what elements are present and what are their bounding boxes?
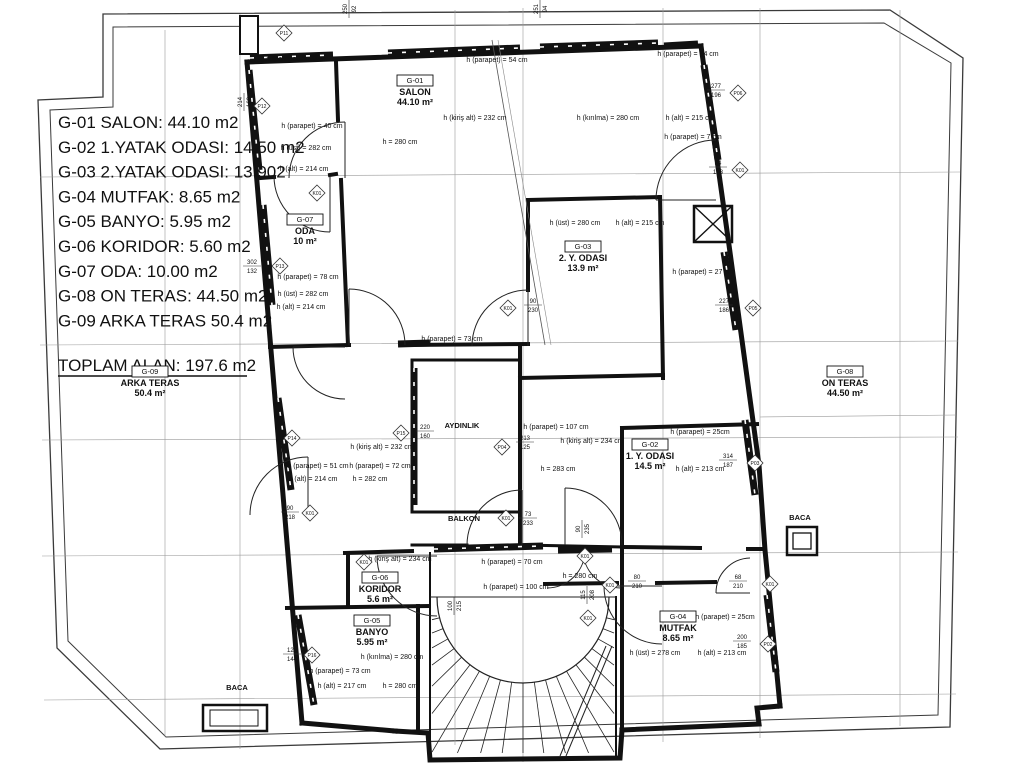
- stair-tread: [432, 639, 448, 648]
- dim-top: 200: [737, 635, 748, 641]
- dim-top: 227: [719, 299, 730, 305]
- room-name: ODA: [295, 226, 316, 236]
- dim-bottom: 160: [420, 434, 431, 440]
- dim-top: 213: [520, 436, 531, 442]
- height-annotation: h (parapet) = 40 cm: [281, 123, 342, 130]
- stair-tread: [502, 682, 511, 753]
- dim-bottom: 210: [632, 584, 643, 590]
- dim-bottom: 218: [285, 515, 296, 521]
- height-annotation: h (üst) = 282 cm: [281, 145, 332, 152]
- height-annotation: h (parapet) = 25cm: [670, 429, 730, 436]
- stair-tread: [606, 618, 614, 620]
- room-label: G-032. Y. ODASI13.9 m²: [559, 241, 607, 273]
- height-annotation: h (alt) = 215 cm: [666, 115, 715, 122]
- legend-item: G-06 KORIDOR: 5.60 m2: [58, 237, 251, 256]
- height-annotation: h (parapet) = 72 cm: [349, 463, 410, 470]
- chimney-rect-inner: [793, 533, 811, 549]
- dim-bottom: 230: [528, 308, 539, 314]
- height-annotation: h (üst) = 278 cm: [630, 650, 681, 657]
- dim-top: 115: [581, 590, 587, 600]
- dim-fraction: 68210: [729, 575, 747, 590]
- stair-tread: [432, 629, 443, 633]
- room-code: G-08: [837, 367, 854, 376]
- room-code: G-07: [297, 215, 314, 224]
- room-area: 44.50 m²: [827, 388, 863, 398]
- dim-bottom: 132: [247, 269, 258, 275]
- dim-bottom: 185: [737, 644, 748, 650]
- wall-bottom-left: [302, 723, 395, 731]
- window: [664, 44, 698, 46]
- marker-label: P06: [734, 91, 743, 97]
- stair-tread: [534, 682, 543, 753]
- room-name: MUTFAK: [659, 623, 697, 633]
- dim-top: 250: [343, 3, 349, 14]
- dim-bottom: 178: [713, 170, 724, 176]
- height-annotation: h (üst) = 282 cm: [278, 291, 329, 298]
- legend-item: G-04 MUTFAK: 8.65 m2: [58, 187, 240, 206]
- height-annotation: h (parapet) = 100 cm: [483, 584, 548, 591]
- marker-diamond: K01: [309, 185, 325, 201]
- room-code: G-05: [364, 616, 381, 625]
- dim-bottom: 125: [520, 445, 531, 451]
- marker-label: K01: [360, 560, 369, 566]
- stair-tread: [457, 676, 489, 753]
- dim-bottom: 196: [711, 93, 722, 99]
- height-annotation: h (üst) = 280 cm: [550, 220, 601, 227]
- room-code: G-09: [142, 367, 159, 376]
- room-name: BANYO: [356, 627, 389, 637]
- room-label: G-08ON TERAS44.50 m²: [822, 366, 869, 398]
- wall-mutfak-top: [545, 582, 715, 584]
- door-arc: [349, 289, 405, 345]
- stair-tread: [432, 618, 440, 620]
- dim-fraction: 25092: [343, 0, 358, 18]
- dim-bottom: 208: [590, 589, 596, 600]
- legend-item: G-07 ODA: 10.00 m2: [58, 262, 218, 281]
- height-annotation: h (parapet) = 73 cm: [421, 336, 482, 343]
- height-annotation: h (parapet) = 73 cm: [309, 668, 370, 675]
- legend-item: G-05 BANYO: 5.95 m2: [58, 212, 231, 231]
- legend-item: G-01 SALON: 44.10 m2: [58, 113, 238, 132]
- room-name: KORIDOR: [359, 584, 402, 594]
- marker-diamond: P13: [272, 258, 288, 274]
- marker-diamond: K01: [500, 300, 516, 316]
- room-code: G-01: [407, 76, 424, 85]
- dim-bottom: 215: [457, 600, 463, 611]
- height-annotation: h (parapet) = 40 cm: [266, 56, 327, 63]
- wall-g03-top: [528, 197, 660, 200]
- dim-top: 84: [715, 161, 722, 167]
- dim-top: 90: [530, 299, 537, 305]
- room-area: 10 m²: [293, 236, 317, 246]
- marker-label: P04: [498, 445, 507, 451]
- height-annotation: h (parapet) = 70 cm: [481, 559, 542, 566]
- room-label: BACA: [789, 513, 811, 522]
- stair-tread: [592, 649, 614, 666]
- room-label: G-04MUTFAK8.65 m²: [659, 611, 697, 643]
- room-label: AYDINLIK: [445, 421, 480, 430]
- height-annotation: h (alt) = 214 cm: [289, 476, 338, 483]
- height-annotation: h (parapet) = 7 cm: [664, 134, 722, 141]
- marker-label: K01: [606, 583, 615, 589]
- grid-line: [44, 694, 956, 700]
- interior-walls: [261, 62, 765, 760]
- marker-label: K01: [306, 511, 315, 517]
- marker-label: P11: [280, 31, 289, 37]
- legend-item: G-08 ON TERAS: 44.50 m2: [58, 287, 267, 306]
- dim-bottom: 92: [352, 5, 358, 12]
- room-area: 8.65 m²: [662, 633, 693, 643]
- height-annotation: h (alt) = 213 cm: [676, 466, 725, 473]
- dim-top: 73: [525, 512, 532, 518]
- dim-top: 302: [247, 260, 258, 266]
- marker-diamond: P04: [494, 439, 510, 455]
- dim-bottom: 235: [585, 523, 591, 534]
- chimney-rect: [787, 527, 817, 555]
- corner-column: [240, 16, 258, 54]
- marker-label: K01: [313, 191, 322, 197]
- room-area: 44.10 m²: [397, 97, 433, 107]
- legend-item: G-02 1.YATAK ODASI: 14.50 m2: [58, 138, 305, 157]
- room-code: G-04: [670, 612, 687, 621]
- dim-fraction: 200185: [733, 635, 751, 650]
- room-name: ON TERAS: [822, 378, 869, 388]
- marker-diamond: K01: [302, 505, 318, 521]
- chimney-rect: [203, 705, 267, 731]
- window: [398, 343, 430, 344]
- room-label: G-05BANYO5.95 m²: [354, 615, 390, 647]
- chimney-rect-inner: [210, 710, 258, 726]
- dim-bottom: 144: [287, 657, 298, 663]
- room-area: 5.6 m²: [367, 594, 393, 604]
- height-annotation: h (alt) = 217 cm: [318, 683, 367, 690]
- dim-top: 314: [723, 454, 734, 460]
- wall-g02-bottom: [622, 547, 765, 549]
- dim-fraction: 100215: [448, 597, 463, 615]
- door-arc: [656, 140, 716, 200]
- height-annotation: h (kırılma) = 280 cm: [577, 115, 640, 122]
- height-annotation: h (parapet) = 25cm: [695, 614, 755, 621]
- height-annotation: h (parapet) = 54 cm: [466, 57, 527, 64]
- wall-g02-top: [622, 424, 757, 428]
- dim-bottom: 94: [543, 5, 549, 12]
- room-area: 13.9 m²: [567, 263, 598, 273]
- marker-label: P15: [397, 431, 406, 437]
- marker-label: K01: [504, 306, 513, 312]
- dim-top: 80: [634, 575, 641, 581]
- dim-fraction: 25194: [534, 0, 549, 18]
- room-label: G-07ODA10 m²: [287, 214, 323, 246]
- space-label: BACA: [226, 683, 248, 692]
- floor-plan-canvas: G-01 SALON: 44.10 m2G-02 1.YATAK ODASI: …: [0, 0, 1024, 772]
- height-annotation: h (kiriş alt) = 234 cm: [560, 438, 623, 445]
- dim-bottom: 233: [523, 521, 534, 527]
- roof-fold-line: [498, 40, 551, 345]
- window: [767, 595, 776, 672]
- height-annotation: h (parapet) = 27 cm: [672, 269, 733, 276]
- marker-label: P03: [751, 461, 760, 467]
- stair-tread: [603, 629, 614, 633]
- marker-label: K01: [584, 616, 593, 622]
- dim-bottom: 186: [719, 308, 730, 314]
- dim-bottom: 210: [733, 584, 744, 590]
- height-annotation: h = 280 cm: [563, 573, 598, 580]
- room-code: G-06: [372, 573, 389, 582]
- dim-top: 90: [576, 525, 582, 532]
- dim-fraction: 302132: [243, 260, 261, 275]
- height-annotation: h = 282 cm: [353, 476, 388, 483]
- height-annotation: h (parapet) = 107 cm: [523, 424, 588, 431]
- legend-item: G-03 2.YATAK ODASI: 13.902: [58, 163, 286, 182]
- space-label: BACA: [789, 513, 811, 522]
- dim-top: 100: [448, 600, 454, 611]
- roof-fold-line: [492, 40, 545, 345]
- marker-diamond: K01: [732, 162, 748, 178]
- marker-diamond: K01: [762, 576, 778, 592]
- height-annotation: h = 283 cm: [541, 466, 576, 473]
- room-name: 1. Y. ODASI: [626, 451, 674, 461]
- height-annotation: h (parapet) = 78 cm: [277, 274, 338, 281]
- room-area: 5.95 m²: [356, 637, 387, 647]
- wall-bottom-right-step: [622, 706, 780, 730]
- stair-tread: [432, 649, 454, 666]
- grid-line: [42, 552, 958, 556]
- marker-diamond: P05: [745, 300, 761, 316]
- dim-top: 251: [534, 3, 540, 14]
- wall-salon-left: [336, 62, 348, 345]
- height-annotation: h (kiriş alt) = 234 cm: [368, 556, 431, 563]
- room-code: G-03: [575, 242, 592, 251]
- dim-fraction: 115208: [581, 586, 596, 604]
- dim-fraction: 80210: [628, 575, 646, 590]
- height-annotation: h (kiriş alt) = 232 cm: [443, 115, 506, 122]
- wall-g03-bottom: [520, 375, 663, 378]
- height-annotation: h (parapet) = 54 cm: [657, 51, 718, 58]
- grid-line: [42, 437, 958, 440]
- dim-bottom: 168: [247, 96, 253, 107]
- grid-line: [760, 415, 956, 417]
- marker-label: P05: [749, 306, 758, 312]
- height-annotation: h = 280 cm: [383, 683, 418, 690]
- dim-fraction: 220160: [416, 425, 434, 440]
- height-annotation: h (alt) = 214 cm: [277, 304, 326, 311]
- marker-label: P13: [276, 264, 285, 270]
- room-name: SALON: [399, 87, 431, 97]
- marker-label: P12: [258, 104, 267, 110]
- marker-diamond: P11: [276, 25, 292, 41]
- stair-break-line: [566, 646, 612, 756]
- dim-top: 125: [287, 648, 298, 654]
- room-code: G-02: [642, 440, 659, 449]
- marker-label: P16: [308, 653, 317, 659]
- room-label: G-021. Y. ODASI14.5 m²: [626, 439, 674, 471]
- room-label: BALKON: [448, 514, 480, 523]
- dim-top: 90: [287, 506, 294, 512]
- room-area: 50.4 m²: [134, 388, 165, 398]
- height-annotation: h = 280 cm: [383, 139, 418, 146]
- room-label: BACA: [226, 683, 248, 692]
- marker-label: P14: [288, 436, 297, 442]
- height-annotation: h (kırılma) = 280 cm: [361, 654, 424, 661]
- space-label: AYDINLIK: [445, 421, 480, 430]
- room-label: G-01SALON44.10 m²: [397, 75, 433, 107]
- marker-diamond: P06: [730, 85, 746, 101]
- floor-plan-page: G-01 SALON: 44.10 m2G-02 1.YATAK ODASI: …: [0, 0, 1024, 772]
- space-label: BALKON: [448, 514, 480, 523]
- marker-diamond: K01: [580, 610, 596, 626]
- dim-fraction: 90235: [576, 520, 591, 538]
- dim-top: 68: [735, 575, 742, 581]
- door-arc: [604, 586, 662, 644]
- height-annotation: h (parapet) = 51 cm: [287, 463, 348, 470]
- door-arc: [293, 347, 345, 399]
- marker-label: K01: [581, 554, 590, 560]
- dim-top: 277: [711, 84, 722, 90]
- wall-corridor-top: [345, 551, 412, 553]
- marker-label: K01: [766, 582, 775, 588]
- dim-bottom: 187: [723, 463, 734, 469]
- marker-label: K01: [736, 168, 745, 174]
- room-name: ARKA TERAS: [121, 378, 180, 388]
- height-annotation: h (alt) = 215 cm: [616, 220, 665, 227]
- marker-label: P02: [764, 642, 773, 648]
- height-annotation: h (alt) = 214 cm: [280, 166, 329, 173]
- room-area: 14.5 m²: [634, 461, 665, 471]
- dim-top: 220: [420, 425, 431, 431]
- height-annotation: h (alt) = 213 cm: [698, 650, 747, 657]
- legend-item: G-09 ARKA TERAS 50.4 m2: [58, 311, 272, 330]
- room-name: 2. Y. ODASI: [559, 253, 607, 263]
- dim-top: 214: [238, 96, 244, 107]
- door-arc: [565, 488, 622, 545]
- marker-label: K01: [502, 516, 511, 522]
- height-annotation: h (kiriş alt) = 232 cm: [350, 444, 413, 451]
- stair-tread: [432, 665, 470, 714]
